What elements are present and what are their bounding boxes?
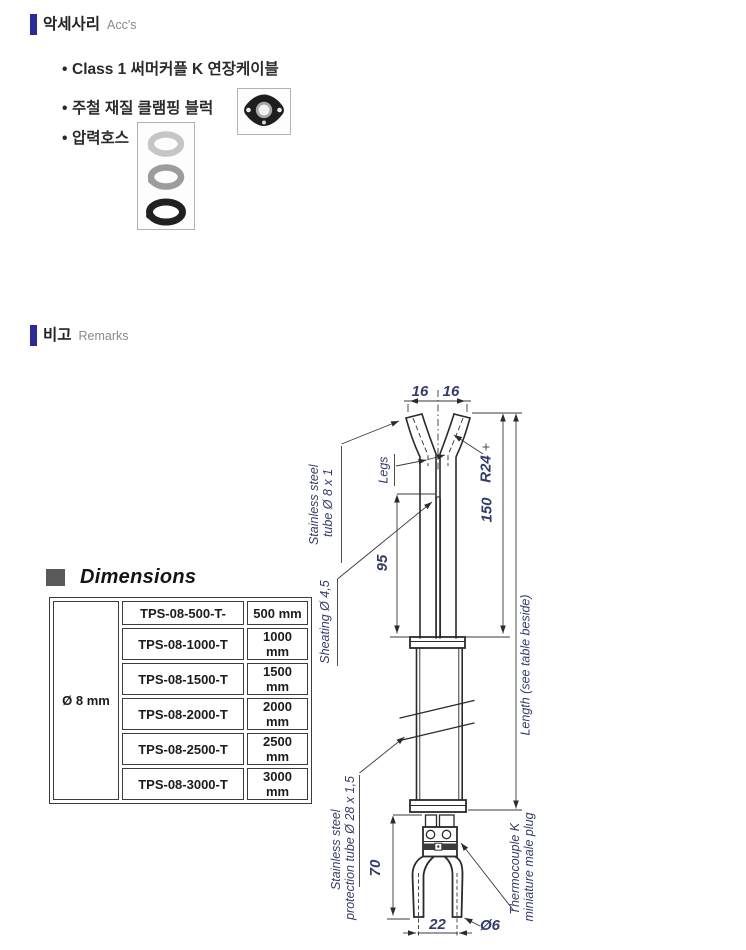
bullet-icon: • (62, 61, 72, 79)
dimensions-table: Ø 8 mm TPS-08-500-T- 500 mm TPS-08-1000-… (49, 597, 312, 804)
length-cell: 500 mm (247, 601, 308, 625)
length-cell: 1000 mm (247, 628, 308, 660)
probe-outline (400, 414, 474, 917)
model-cell: TPS-08-500-T- (122, 601, 244, 625)
bullet-icon: • (62, 100, 72, 118)
pressure-hose-clamps-image (138, 123, 194, 229)
clamping-block-image (238, 89, 290, 134)
label-sheathing: Sheating Ø 4,5 (318, 580, 332, 663)
label-plug-line1: Thermocouple K (508, 822, 522, 914)
label-plug: Thermocouple K miniature male plug (508, 812, 536, 921)
accessories-title-ko: 악세사리 (43, 14, 100, 35)
dimensions-section-header: Dimensions (46, 566, 196, 589)
accessory-item: •주철 재질 클램핑 블럭 (62, 96, 213, 118)
label-protection-tube-line2: protection tube Ø 28 x 1,5 (343, 776, 357, 921)
dim-150: 150 (479, 497, 496, 523)
table-row: Ø 8 mm TPS-08-500-T- 500 mm (53, 601, 308, 625)
label-stainless-tube: Stainless steel tube Ø 8 x 1 (307, 461, 335, 545)
accessory-item: •압력호스 (62, 126, 129, 148)
clamping-block-photo (237, 88, 291, 135)
thermocouple-technical-drawing: 16 16 R24 150 95 70 22 Ø6 Stainless stee… (300, 370, 560, 950)
label-plug-line2: miniature male plug (522, 812, 536, 921)
dim-dia6: Ø6 (480, 917, 501, 934)
pressure-hose-photo (137, 122, 195, 230)
accessory-item-label: 압력호스 (72, 130, 129, 147)
square-bullet-icon (46, 569, 65, 586)
label-length: Length (see table beside) (519, 594, 533, 735)
model-cell: TPS-08-1000-T (122, 628, 244, 660)
label-protection-tube-line1: Stainless steel (329, 808, 343, 890)
length-cell: 2000 mm (247, 698, 308, 730)
length-cell: 2500 mm (247, 733, 308, 765)
remarks-section-header: 비고 Remarks (30, 325, 129, 348)
model-cell: TPS-08-2000-T (122, 698, 244, 730)
label-stainless-tube-line1: Stainless steel (307, 463, 321, 545)
accessory-item-label: 주철 재질 클램핑 블럭 (72, 100, 213, 117)
dim-16-left: 16 (412, 383, 429, 400)
label-legs: Legs (377, 456, 391, 483)
diameter-cell: Ø 8 mm (53, 601, 119, 800)
accessory-item: •Class 1 써머커플 K 연장케이블 (62, 57, 279, 79)
dim-r24: R24 (478, 455, 495, 483)
dim-22: 22 (428, 916, 446, 933)
accent-bar (30, 14, 37, 35)
length-cell: 1500 mm (247, 663, 308, 695)
model-cell: TPS-08-1500-T (122, 663, 244, 695)
accent-bar (30, 325, 37, 346)
dimensions-title: Dimensions (80, 566, 196, 589)
remarks-title-ko: 비고 (43, 325, 72, 346)
label-protection-tube: Stainless steel protection tube Ø 28 x 1… (329, 776, 357, 921)
accessories-title-en: Acc's (107, 14, 136, 37)
length-cell: 3000 mm (247, 768, 308, 800)
dim-16-right: 16 (443, 383, 460, 400)
label-stainless-tube-line2: tube Ø 8 x 1 (321, 469, 335, 537)
accessories-section-header: 악세사리 Acc's (30, 14, 137, 37)
model-cell: TPS-08-2500-T (122, 733, 244, 765)
plug-band (424, 843, 456, 850)
bullet-icon: • (62, 130, 72, 148)
model-cell: TPS-08-3000-T (122, 768, 244, 800)
accessory-item-label: Class 1 써머커플 K 연장케이블 (72, 61, 279, 78)
dim-95: 95 (374, 554, 391, 571)
remarks-title-en: Remarks (79, 325, 129, 348)
probe-detail (410, 418, 466, 806)
dim-70: 70 (367, 859, 384, 876)
